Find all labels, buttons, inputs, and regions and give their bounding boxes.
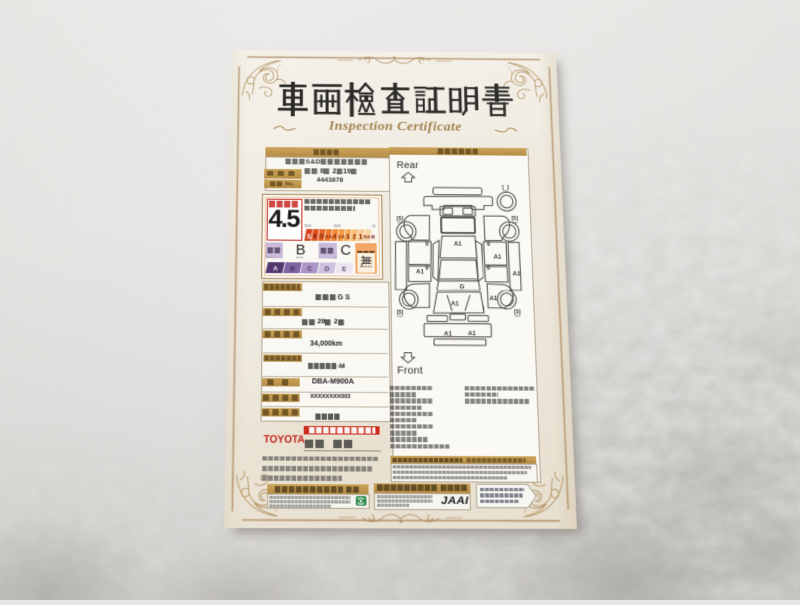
svg-text:mm: mm (397, 314, 403, 318)
svg-text:mm: mm (503, 189, 509, 193)
svg-text:A1: A1 (489, 296, 497, 302)
svg-text:A1: A1 (451, 301, 459, 307)
svg-text:G: G (459, 284, 465, 290)
svg-text:mm: mm (512, 220, 518, 224)
svg-text:A1: A1 (468, 331, 476, 337)
svg-text:mm: mm (397, 220, 403, 224)
svg-text:A1: A1 (416, 269, 424, 275)
svg-text:A1: A1 (444, 331, 452, 337)
svg-text:A1: A1 (454, 241, 462, 247)
svg-text:mm: mm (515, 314, 521, 318)
svg-text:A1: A1 (493, 254, 501, 260)
svg-text:A1: A1 (512, 271, 520, 277)
